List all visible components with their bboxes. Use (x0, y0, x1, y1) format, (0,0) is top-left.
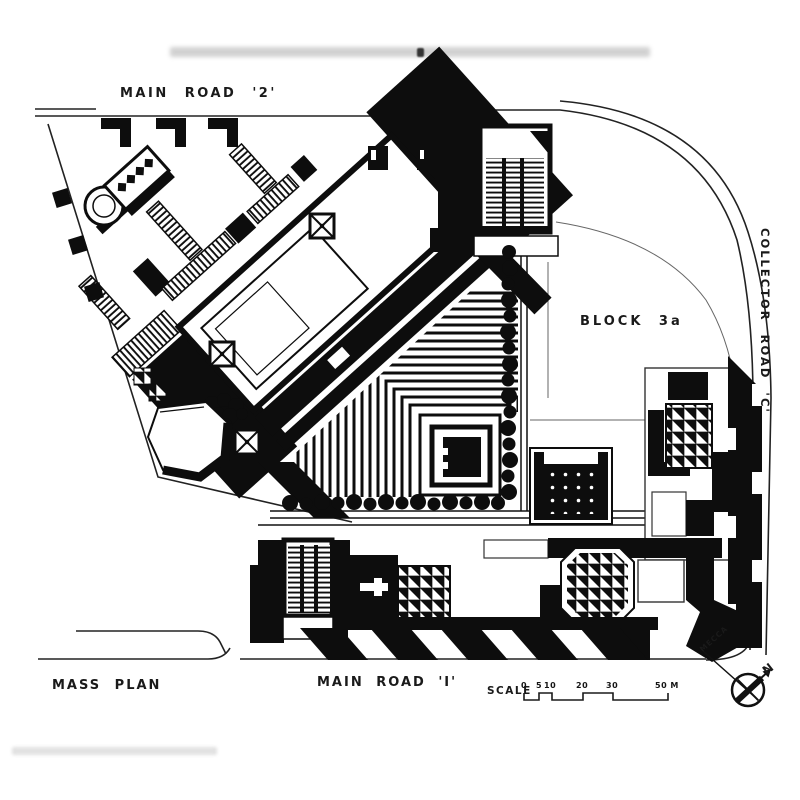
scale-tick-50m: 50 M (655, 681, 679, 690)
scale-tick-0: 0 (521, 681, 527, 690)
sunken-court (530, 448, 612, 524)
scale-tick-10: 10 (544, 681, 556, 690)
block-3a-label: BLOCK 3a (580, 314, 683, 329)
south-frontage (250, 538, 740, 662)
mass-plan-label: MASS PLAN (52, 678, 161, 693)
heptagon-plaza (148, 402, 228, 477)
central-pavilion (420, 415, 500, 495)
main-road-1-label: MAIN ROAD 'I' (317, 675, 457, 690)
collector-road-c-label: COLLECTOR ROAD 'C' (758, 228, 772, 414)
scale-tick-30: 30 (606, 681, 618, 690)
north-hatched-building (430, 126, 558, 256)
compass-icon (703, 651, 771, 706)
scale-bar (524, 693, 668, 700)
mass-plan-sheet: MAIN ROAD '2' COLLECTOR ROAD 'C' BLOCK 3… (0, 0, 800, 800)
east-cluster (645, 368, 730, 560)
main-road-2-label: MAIN ROAD '2' (120, 86, 277, 101)
scale-tick-5: 5 (536, 681, 542, 690)
scale-tick-20: 20 (576, 681, 588, 690)
